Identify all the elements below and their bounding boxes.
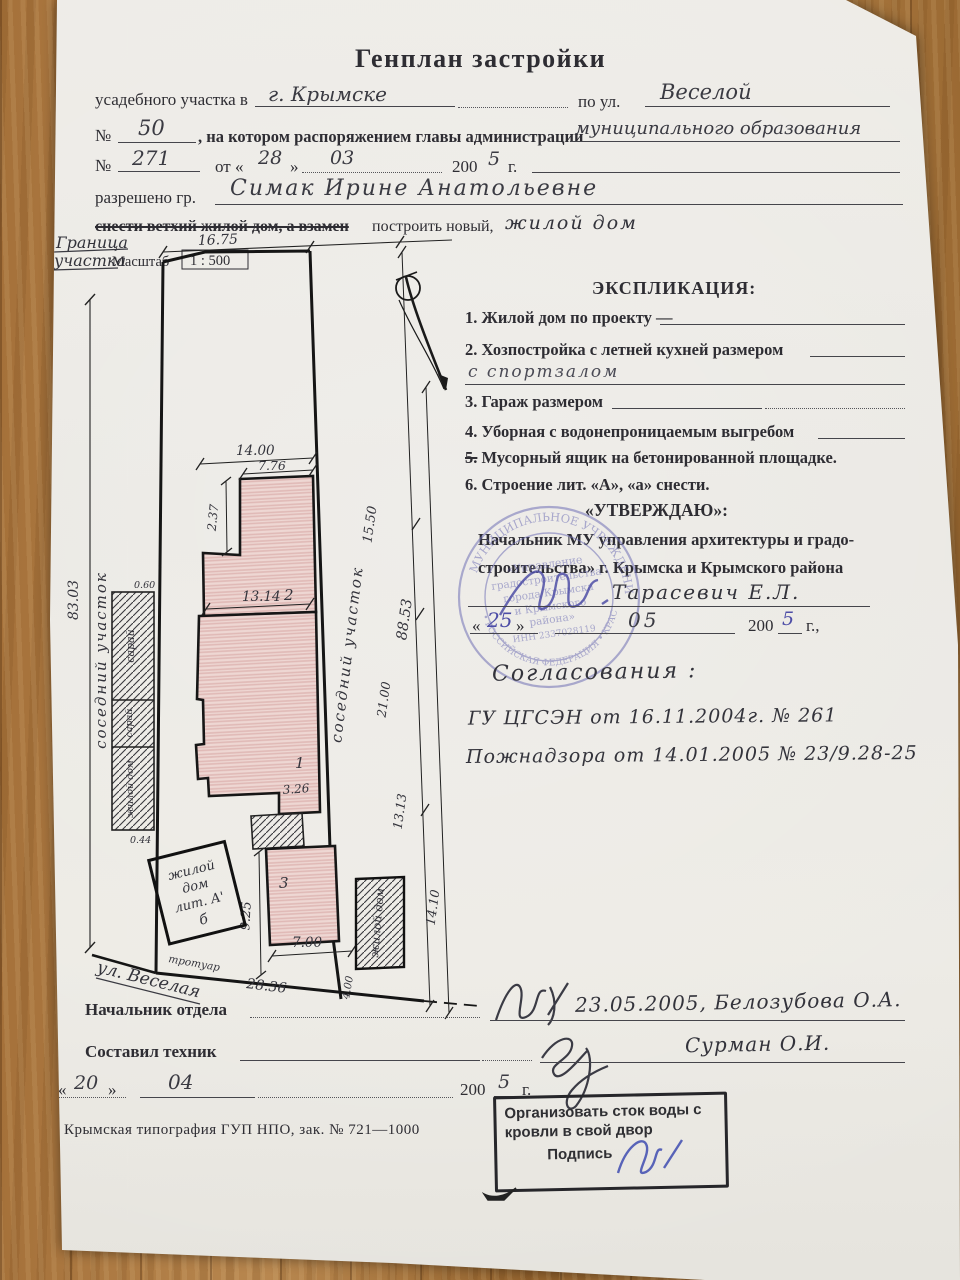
- form-line: [258, 1097, 453, 1098]
- dim-label: 15.50: [361, 505, 381, 544]
- item-text: Мусорный ящик на бетонированной площадке…: [482, 448, 837, 467]
- form-line: [118, 171, 200, 172]
- building-2-label: 2: [283, 586, 294, 604]
- approve-year-pre: 200: [748, 616, 774, 636]
- form-line1-label: усадебного участка в: [95, 90, 248, 110]
- form-line3-day: 28: [258, 147, 282, 169]
- explication-item: 5. Мусорный ящик на бетонированной площа…: [465, 448, 837, 468]
- form-line: [240, 1060, 480, 1061]
- explication-item: 3. Гараж размером: [465, 392, 603, 412]
- agreements-line1: ГУ ЦГСЭН от 16.11.2004г. № 261: [468, 704, 838, 729]
- form-line1-mid: по ул.: [578, 92, 620, 112]
- item-text: Строение лит. «А», «а» снести.: [482, 475, 710, 494]
- building-1-label: 1: [295, 754, 305, 772]
- form-line3-ot: от «: [215, 157, 243, 177]
- dim-label: 88.53: [394, 598, 416, 641]
- form-line: [778, 633, 802, 634]
- officials-date-year: 5: [498, 1071, 510, 1093]
- form-line2-no: 50: [138, 116, 165, 140]
- scanned-sheet: Генплан застройки усадебного участка в г…: [0, 0, 960, 1280]
- form-line: [140, 1097, 255, 1098]
- building-part3: [266, 846, 339, 945]
- form-line: [612, 408, 762, 409]
- form-line3-month: 03: [330, 147, 354, 169]
- neighbor-sheds: сарай сарай жилой дом 0.60 0.44: [112, 580, 155, 846]
- form-line: [56, 1097, 126, 1098]
- street-dashed-line: [424, 1001, 480, 1026]
- form-line3-year-pre: 200: [452, 157, 478, 177]
- item-text: Гараж размером: [482, 392, 604, 411]
- approve-date-day: 25: [487, 608, 512, 632]
- approve-g: г.,: [806, 616, 820, 636]
- site-plan: Граница участка Масштаб 1 : 500 16.75 83…: [40, 228, 480, 1028]
- form-line2-no-label: №: [95, 126, 111, 146]
- explication-item: 1. Жилой дом по проекту —: [465, 308, 673, 328]
- dim-label: 3.26: [282, 781, 310, 797]
- form-line2-text: , на котором распоряжением главы админис…: [198, 127, 583, 147]
- note-line1: Организовать сток воды с: [504, 1101, 702, 1122]
- neighbor-plot-mid-label: соседний участок: [327, 565, 367, 744]
- explication-title: ЭКСПЛИКАЦИЯ:: [592, 278, 756, 299]
- officials-date-month: 04: [168, 1070, 193, 1094]
- item-text: Хозпостройка с летней кухней размером: [482, 340, 784, 359]
- explication-item: 6. Строение лит. «А», «а» снести.: [465, 475, 710, 495]
- form-line3-no-label: №: [95, 156, 111, 176]
- form-line3-close: »: [290, 157, 299, 177]
- neighbor-house-right: жилой дом: [356, 877, 404, 969]
- officials-date-day: 20: [74, 1072, 98, 1094]
- item-num: 5.: [465, 448, 477, 467]
- form-line: [765, 408, 905, 409]
- note-signature: [598, 1128, 688, 1188]
- dim-label: 13.13: [390, 793, 410, 831]
- form-line5-hand: жилой дом: [505, 212, 638, 234]
- form-line1-value: г. Крымске: [268, 82, 387, 106]
- neighbor-plot-left-label: соседний участок: [92, 571, 110, 749]
- dim-label: 4.00: [340, 975, 356, 1001]
- dim-label: 16.75: [198, 232, 239, 249]
- form-line: [302, 172, 442, 173]
- form-line: [470, 633, 538, 634]
- old-house-label: б: [198, 911, 211, 929]
- form-line: [645, 106, 890, 107]
- explication-item2-hand: с спортзалом: [468, 362, 619, 382]
- item-num: 2.: [465, 340, 477, 359]
- item-num: 6.: [465, 475, 477, 494]
- form-line: [810, 356, 905, 357]
- dim-label: 7.76: [258, 458, 286, 473]
- neighbor-house-label: жилой дом: [125, 760, 136, 818]
- building-3-label: 3: [279, 874, 289, 892]
- form-line: [118, 142, 196, 143]
- dim-label: 2.37: [205, 503, 222, 532]
- paper-sheet: Генплан застройки усадебного участка в г…: [0, 0, 960, 1280]
- form-line3-year: 5: [488, 148, 500, 170]
- form-line1-value2: Веселой: [660, 80, 752, 104]
- item-text: Уборная с водонепроницаемым выгребом: [482, 422, 795, 441]
- form-line: [250, 1017, 480, 1018]
- technician-label: Составил техник: [85, 1042, 217, 1062]
- dim-label: 28.36: [245, 976, 288, 997]
- form-line4-label: разрешено гр.: [95, 188, 196, 208]
- dim-left: 83.03: [66, 294, 95, 953]
- form-line: [215, 204, 903, 205]
- form-line: [540, 1062, 905, 1063]
- item-num: 4.: [465, 422, 477, 441]
- tech-value: Сурман О.И.: [685, 1031, 831, 1058]
- form-line3-g: г.: [508, 157, 517, 177]
- form-line: [468, 606, 870, 607]
- old-house-lit-a: жилой дом лит. А' б: [149, 842, 245, 944]
- form-line4-value: Симак Ирине Анатольевне: [230, 176, 598, 201]
- dim-label: 21.00: [373, 681, 393, 720]
- form-line: [555, 633, 735, 634]
- explication-item: 2. Хозпостройка с летней кухней размером: [465, 340, 783, 360]
- form-line: [818, 438, 905, 439]
- form-line: [532, 172, 900, 173]
- officials-year-pre: 200: [460, 1080, 486, 1100]
- print-info: Крымская типография ГУП НПО, зак. № 721—…: [64, 1122, 420, 1139]
- agreements-line2: Пожнадзора от 14.01.2005 № 23/9.28-25: [466, 742, 918, 768]
- head-of-dept-label: Начальник отдела: [85, 1000, 227, 1020]
- dim-label: 13.14: [242, 589, 281, 605]
- form-line: [465, 384, 905, 385]
- form-line: [458, 107, 568, 108]
- form-line3-no: 271: [132, 146, 170, 170]
- shed-label: сарай: [124, 709, 135, 738]
- item-num: 3.: [465, 392, 477, 411]
- item-text: Жилой дом по проекту —: [482, 308, 673, 327]
- explication-item: 4. Уборная с водонепроницаемым выгребом: [465, 422, 794, 442]
- sidewalk-label: тротуар: [167, 953, 221, 974]
- approve-name: Тарасевич Е.Л.: [612, 580, 800, 604]
- approve-date-month: 05: [628, 608, 659, 632]
- agreements-title: Согласования :: [492, 658, 698, 687]
- form-line2-value: муниципального образования: [575, 118, 861, 139]
- page-title: Генплан застройки: [355, 44, 606, 74]
- dim-label: 0.44: [130, 835, 151, 846]
- head-signature: [488, 975, 578, 1030]
- form-line: [490, 1020, 905, 1021]
- dim-label: 83.03: [66, 580, 82, 620]
- check-mark: [482, 1178, 522, 1204]
- dim-label: 7.00: [292, 935, 322, 951]
- item-num: 1.: [465, 308, 477, 327]
- dim-label: 14.00: [236, 443, 275, 459]
- form-line: [482, 1060, 532, 1061]
- form-line: [660, 324, 905, 325]
- building-steps: [251, 813, 304, 849]
- form-line: [570, 141, 900, 142]
- head-value: 23.05.2005, Белозубова О.А.: [575, 987, 902, 1017]
- shed-label: сарай: [124, 629, 137, 662]
- approve-date-year: 5: [782, 608, 794, 630]
- form-line: [255, 106, 455, 107]
- dim-label: 0.60: [134, 580, 155, 591]
